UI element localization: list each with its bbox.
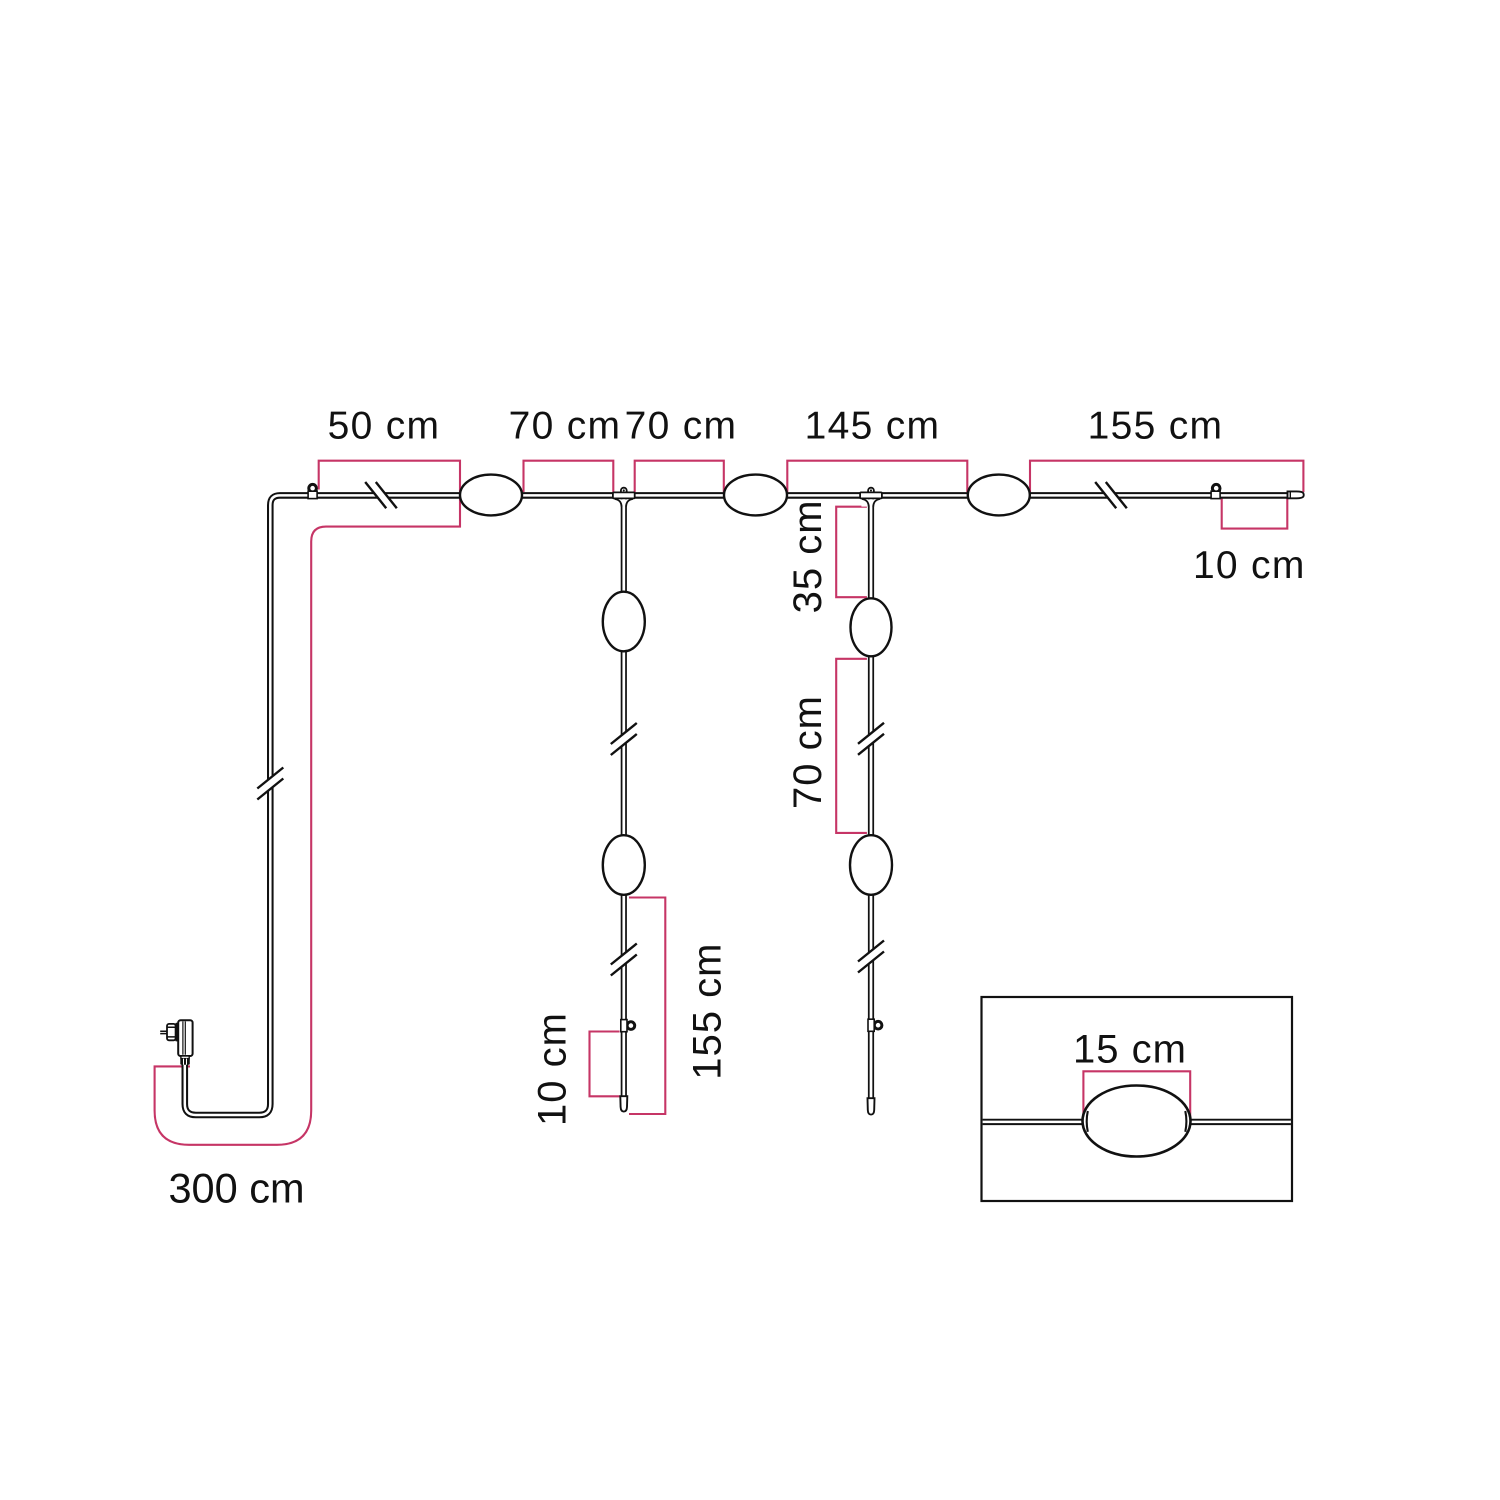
- svg-text:10 cm: 10 cm: [1193, 544, 1306, 587]
- svg-text:70 cm: 70 cm: [509, 405, 622, 448]
- svg-text:300 cm: 300 cm: [168, 1165, 304, 1212]
- svg-text:145 cm: 145 cm: [805, 405, 941, 448]
- svg-text:50 cm: 50 cm: [328, 405, 441, 448]
- svg-text:70 cm: 70 cm: [625, 405, 738, 448]
- svg-text:155 cm: 155 cm: [1088, 405, 1224, 448]
- svg-text:155 cm: 155 cm: [686, 943, 730, 1080]
- svg-text:70 cm: 70 cm: [786, 695, 830, 809]
- svg-text:15 cm: 15 cm: [1073, 1028, 1187, 1072]
- svg-text:35 cm: 35 cm: [786, 499, 830, 613]
- svg-text:10 cm: 10 cm: [530, 1012, 574, 1126]
